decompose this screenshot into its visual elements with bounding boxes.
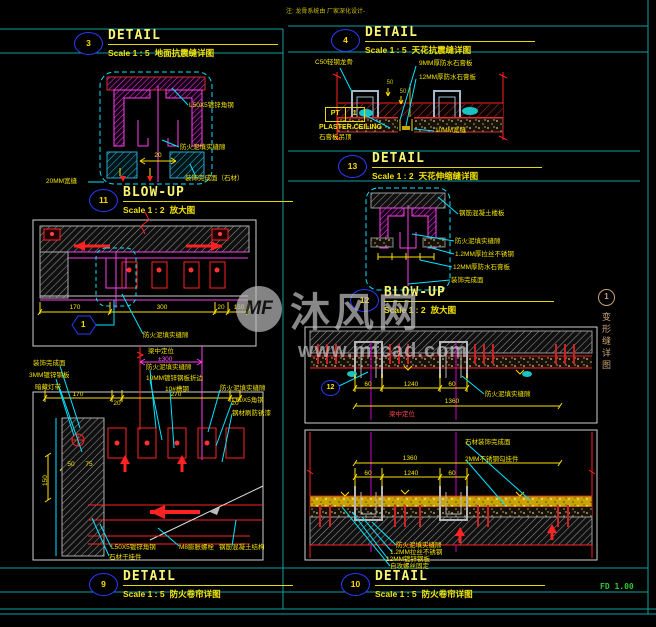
detail-word: BLOW-UP [123, 185, 293, 201]
detail-word: DETAIL [372, 151, 542, 167]
annotation-stone-hanger: 石材干挂件 [109, 554, 142, 562]
sheet-index-circle: 1 [598, 289, 615, 306]
detail-name: 防火卷帘详图 [422, 589, 473, 599]
detail-scale: Scale 1 : 5 [123, 589, 165, 599]
detail-scale: Scale 1 : 2 [123, 205, 165, 215]
watermark-logo-icon: MF [236, 286, 282, 332]
sheet-side-tab: 1 变形缝详图 [598, 289, 615, 372]
dim-50: 50 [67, 461, 74, 469]
titleblock-ceiling-seismic: 4 DETAIL Scale 1 : 5天花抗震缝详图 [331, 25, 535, 56]
annotation-finish-stone: 装饰完成面（石材） [185, 175, 244, 183]
detail-name: 放大图 [170, 205, 196, 215]
detail-name: 地面抗震缝详图 [155, 48, 215, 58]
detail-word: DETAIL [365, 25, 535, 41]
annotation-fireclay: 防火泥填实缝隙 [143, 332, 189, 340]
annotation-fireclay: 防火泥填实缝隙 [220, 385, 266, 393]
annotation-gypsum-2: 12MM厚防水石膏板 [419, 74, 476, 82]
blowup11-drawing [88, 72, 212, 184]
dim-150: 150 [42, 475, 50, 486]
detail-scale: Scale 1 : 5 [365, 45, 407, 55]
detail-bubble-9: 9 [89, 573, 118, 596]
watermark: MF 沐风网 www.mfcad.com [236, 280, 468, 363]
dim-60: 60 [364, 470, 371, 478]
blowup-marker-12: 12 [321, 380, 340, 396]
annotation-rc-structure: 钢筋混凝土结构 [219, 544, 265, 552]
annotation-steel-keel: C50轻钢龙骨 [315, 59, 353, 67]
plan3-drawing [33, 212, 256, 346]
annotation-galv-plate: 3MM镀锌钢板 [29, 372, 69, 380]
annotation-angle-steel: L50X5镀锌角钢 [189, 102, 234, 110]
annotation-plaster-ceiling-cn: 石膏板吊顶 [319, 134, 352, 142]
annotation-plaster-ceiling-en: PLASTER CEILING [319, 124, 382, 133]
blowup12-drawing [366, 188, 458, 290]
detail-bubble-10: 10 [341, 573, 370, 596]
annotation-concrete-slab: 钢筋混凝土楼板 [459, 210, 505, 218]
annotation-beam-center: 梁中定位 [389, 411, 415, 419]
annotation-gap-width: 10MM宽缝 [435, 127, 466, 135]
titleblock-shutter-right: 10 DETAIL Scale 1 : 5防火卷帘详图 [341, 569, 545, 600]
titleblock-blowup-left: 11 BLOW-UP Scale 1 : 2放大图 [89, 185, 293, 216]
annotation-gap-width: 20MM宽缝 [46, 178, 77, 186]
dim-170: 170 [73, 391, 84, 399]
dim-20: 20 [231, 400, 238, 408]
dim-300: 300 [157, 304, 168, 312]
annotation-fireclay: 防火泥填实缝隙 [180, 144, 226, 152]
annotation-plate-fold: 10MM镀锌钢板折边 [146, 375, 203, 383]
dim-1360: 1360 [403, 455, 417, 463]
titleblock-floor-seismic: 3 DETAIL Scale 1 : 5地面抗震缝详图 [74, 28, 278, 59]
cad-sheet: 3 DETAIL Scale 1 : 5地面抗震缝详图 4 DETAIL Sca… [0, 0, 656, 627]
annotation-fireclay: 防火泥填实缝隙 [455, 238, 501, 246]
annotation-anti-rust-paint: 钢材刷防锈漆 [232, 410, 271, 418]
watermark-url: www.mfcad.com [298, 340, 468, 363]
dim-1240: 1240 [404, 470, 418, 478]
detail-word: DETAIL [123, 569, 293, 585]
dim-20: 20 [217, 304, 224, 312]
annotation-gypsum-1: 9MM厚防水石膏板 [419, 60, 472, 68]
annotation-fireclay: 防火泥填实缝隙 [146, 364, 192, 372]
plot-stamp: FD 1.00 [600, 582, 634, 591]
detail-name: 天花伸缩缝详图 [419, 171, 479, 181]
annotation-stainless-hook: 2MM不锈钢勾挂件 [465, 456, 518, 464]
detail-word: DETAIL [375, 569, 545, 585]
section-marker-1: 1 [81, 320, 85, 329]
finish-tag-code: PT [326, 108, 345, 121]
annotation-fireclay: 防火泥填实缝隙 [485, 391, 531, 399]
detail-name: 天花抗震缝详图 [412, 45, 472, 55]
dim-60: 60 [364, 381, 371, 389]
annotation-expansion-bolt: M8膨胀螺栓 [179, 544, 214, 552]
finish-tag-number: 1 [345, 108, 365, 121]
annotation-beam-center: 梁中定位 [148, 348, 174, 356]
dim-60: 60 [448, 470, 455, 478]
annotation-finish: 装饰完成面 [33, 360, 66, 368]
detail-word: DETAIL [108, 28, 278, 44]
detail-scale: Scale 1 : 2 [372, 171, 414, 181]
finish-tag-pt1: PT 1 [325, 107, 365, 122]
detail-bubble-4: 4 [331, 29, 360, 52]
dim-170: 170 [70, 304, 81, 312]
dim-50: 50 [400, 89, 407, 97]
detail-bubble-3: 3 [74, 32, 103, 55]
dim-plus-minus-300: ±300 [158, 356, 172, 364]
sheet-note: 注: 龙骨系统由 厂家深化设计- [286, 9, 365, 17]
detail-scale: Scale 1 : 5 [108, 48, 150, 58]
detail-bubble-13: 13 [338, 155, 367, 178]
detail-name: 防火卷帘详图 [170, 589, 221, 599]
dim-75: 75 [85, 461, 92, 469]
dim-20: 20 [113, 400, 120, 408]
watermark-site-name: 沐风网 [290, 280, 422, 338]
annotation-stainless-steel: 1.2MM厚拉丝不锈钢 [455, 251, 514, 259]
dim-50: 50 [387, 80, 394, 88]
detail-bubble-11: 11 [89, 189, 118, 212]
sheet-index-title: 变形缝详图 [600, 312, 613, 372]
annotation-angle-steel: L50X5镀锌角钢 [111, 544, 156, 552]
dim-60: 60 [448, 381, 455, 389]
annotation-light-cove: 暗藏灯带 [35, 384, 61, 392]
titleblock-ceiling-expansion: 13 DETAIL Scale 1 : 2天花伸缩缝详图 [338, 151, 542, 182]
dim-1240: 1240 [404, 381, 418, 389]
dim-1360: 1360 [445, 398, 459, 406]
dim-270: 270 [171, 391, 182, 399]
detail-scale: Scale 1 : 5 [375, 589, 417, 599]
dim-20: 20 [154, 152, 161, 160]
annotation-gypsum: 12MM厚防水石膏板 [453, 264, 510, 272]
titleblock-shutter-left: 9 DETAIL Scale 1 : 5防火卷帘详图 [89, 569, 293, 600]
annotation-stone-finish: 石材装饰完成面 [465, 439, 511, 447]
